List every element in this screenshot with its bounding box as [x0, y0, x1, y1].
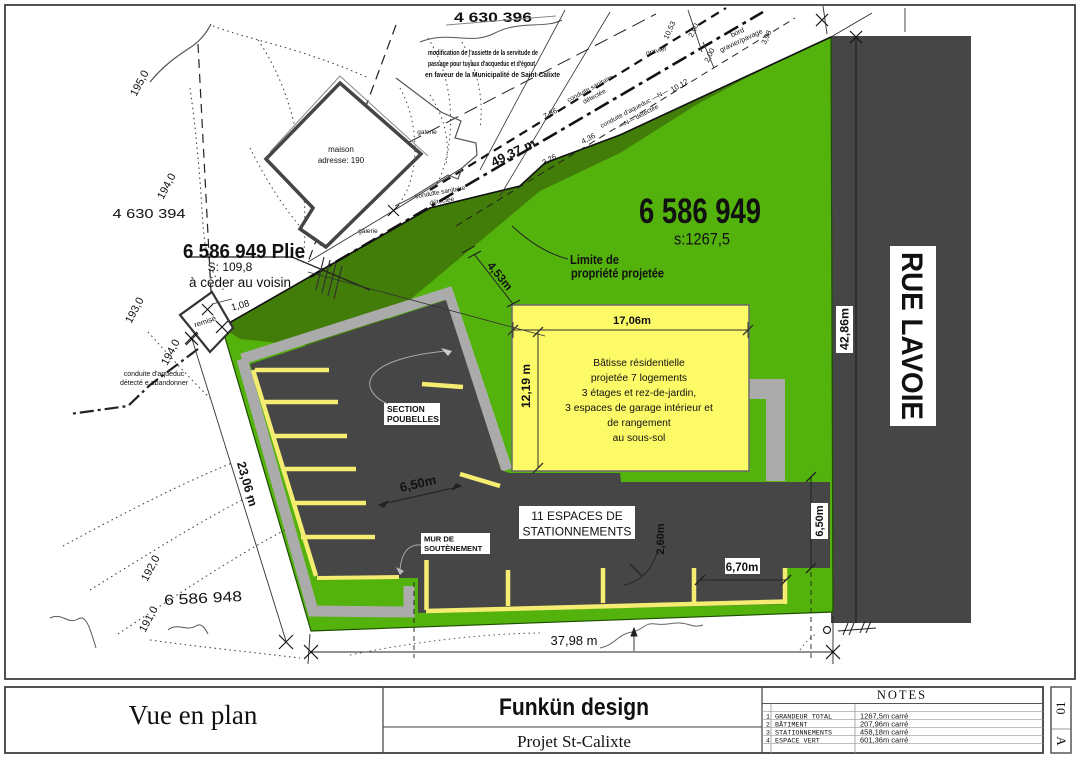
- svg-text:POUBELLES: POUBELLES: [387, 414, 439, 424]
- svg-text:S: 109,8: S: 109,8: [208, 260, 253, 274]
- svg-text:37,98 m: 37,98 m: [551, 633, 598, 648]
- svg-text:MUR DE: MUR DE: [424, 535, 454, 544]
- svg-text:01: 01: [1053, 702, 1068, 715]
- svg-text:3: 3: [766, 730, 770, 737]
- svg-text:galerie: galerie: [358, 228, 378, 235]
- svg-text:projetée 7 logements: projetée 7 logements: [591, 373, 687, 384]
- svg-text:galerie: galerie: [417, 129, 437, 136]
- svg-text:Bâtisse résidentielle: Bâtisse résidentielle: [593, 358, 685, 369]
- svg-text:4: 4: [766, 738, 770, 745]
- svg-text:Projet St-Calixte: Projet St-Calixte: [517, 732, 631, 751]
- svg-text:Vue en plan: Vue en plan: [129, 700, 258, 730]
- svg-text:conduite d'aqueduc: conduite d'aqueduc: [124, 371, 185, 378]
- svg-text:6,70m: 6,70m: [726, 562, 759, 574]
- svg-text:s:1267,5: s:1267,5: [674, 230, 730, 249]
- svg-text:GRANDEUR TOTAL: GRANDEUR TOTAL: [775, 714, 832, 722]
- svg-text:SOUTÈNEMENT: SOUTÈNEMENT: [424, 544, 483, 553]
- svg-text:601,36m carré: 601,36m carré: [860, 736, 908, 745]
- svg-text:STATIONNEMENTS: STATIONNEMENTS: [523, 525, 632, 539]
- svg-text:en faveur de la Municipalité d: en faveur de la Municipalité de Saint-Ca…: [425, 70, 560, 79]
- svg-text:17,06m: 17,06m: [613, 315, 651, 327]
- svg-text:SECTION: SECTION: [387, 404, 425, 414]
- svg-text:à céder au voisin: à céder au voisin: [189, 275, 291, 290]
- svg-text:2: 2: [766, 722, 770, 729]
- svg-text:de rangement: de rangement: [607, 418, 671, 429]
- svg-text:détecté e abandonner: détecté e abandonner: [120, 380, 189, 387]
- svg-text:2,60m: 2,60m: [655, 523, 667, 554]
- svg-text:passage pour tuyaux d'acqueduc: passage pour tuyaux d'acqueduc et d'égou…: [428, 59, 535, 68]
- svg-text:Funkün design: Funkün design: [499, 694, 649, 721]
- svg-text:A: A: [1054, 736, 1069, 746]
- svg-text:adresse: 190: adresse: 190: [318, 156, 365, 165]
- svg-text:3 espaces de garage intérieur: 3 espaces de garage intérieur et: [565, 403, 713, 414]
- svg-text:au sous-sol: au sous-sol: [613, 433, 666, 444]
- svg-text:1: 1: [766, 714, 770, 721]
- svg-text:6,50m: 6,50m: [814, 505, 826, 536]
- svg-text:NOTES: NOTES: [877, 688, 927, 702]
- svg-text:STATIONNEMENTS: STATIONNEMENTS: [775, 730, 832, 738]
- svg-text:propriété projetée: propriété projetée: [571, 266, 664, 281]
- svg-text:RUE LAVOIE: RUE LAVOIE: [895, 252, 928, 420]
- svg-text:maison: maison: [328, 145, 354, 154]
- svg-text:4 630 394: 4 630 394: [113, 206, 186, 221]
- svg-text:12,19 m: 12,19 m: [521, 364, 533, 408]
- svg-text:11 ESPACES DE: 11 ESPACES DE: [531, 509, 623, 523]
- svg-text:modification de l'assiette de: modification de l'assiette de la servitu…: [428, 48, 538, 57]
- svg-text:BÂTIMENT: BÂTIMENT: [775, 721, 808, 730]
- svg-text:42,86m: 42,86m: [840, 308, 852, 350]
- svg-text:4 630 396: 4 630 396: [454, 9, 532, 25]
- svg-text:6 586 949: 6 586 949: [639, 192, 761, 231]
- svg-text:ESPACE VERT: ESPACE VERT: [775, 738, 820, 746]
- svg-text:3 étages et rez-de-jardin,: 3 étages et rez-de-jardin,: [582, 388, 696, 399]
